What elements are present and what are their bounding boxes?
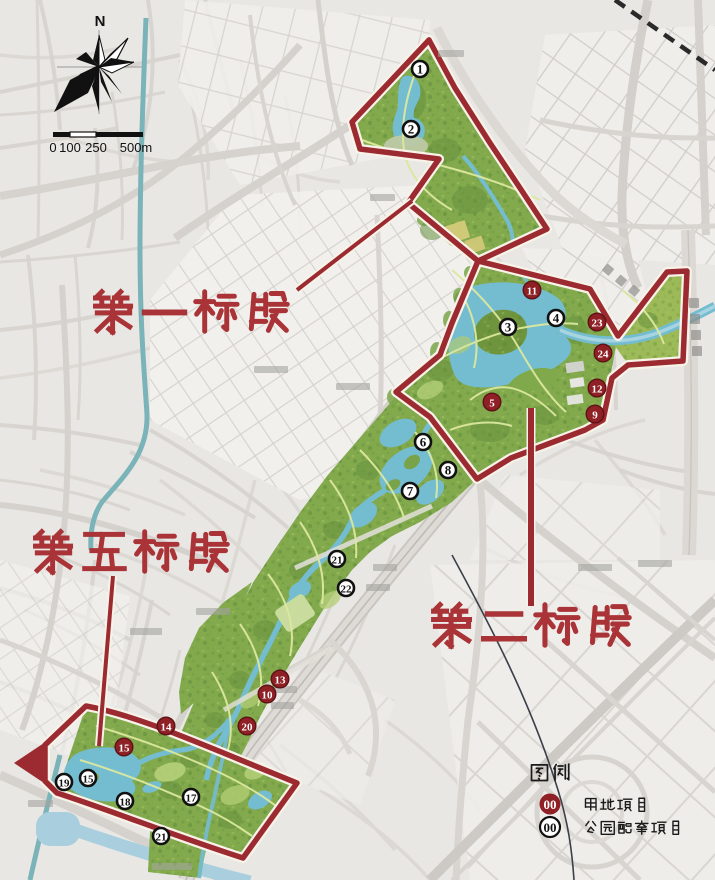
svg-text:00: 00 xyxy=(544,820,557,835)
svg-text:250: 250 xyxy=(85,140,107,155)
svg-text:21: 21 xyxy=(156,832,167,844)
svg-text:9: 9 xyxy=(592,410,598,422)
svg-text:1: 1 xyxy=(417,62,424,77)
svg-text:0: 0 xyxy=(49,140,56,155)
svg-text:8: 8 xyxy=(445,463,452,478)
svg-text:N: N xyxy=(95,13,106,30)
svg-text:21: 21 xyxy=(332,555,343,567)
svg-text:5: 5 xyxy=(489,398,495,410)
svg-text:11: 11 xyxy=(527,286,537,298)
svg-text:6: 6 xyxy=(420,435,427,450)
svg-text:3: 3 xyxy=(505,320,512,335)
svg-text:100: 100 xyxy=(59,140,81,155)
svg-text:15: 15 xyxy=(83,774,95,786)
svg-text:20: 20 xyxy=(242,722,254,734)
svg-text:13: 13 xyxy=(275,675,287,687)
svg-text:7: 7 xyxy=(407,484,414,499)
svg-text:14: 14 xyxy=(161,722,173,734)
svg-text:23: 23 xyxy=(592,318,604,330)
svg-text:17: 17 xyxy=(186,793,198,805)
svg-text:500m: 500m xyxy=(120,140,153,155)
svg-text:12: 12 xyxy=(592,384,604,396)
svg-text:22: 22 xyxy=(341,584,353,596)
svg-text:18: 18 xyxy=(120,797,132,809)
svg-text:10: 10 xyxy=(262,690,274,702)
svg-text:2: 2 xyxy=(408,122,415,137)
svg-text:19: 19 xyxy=(59,778,71,790)
svg-text:24: 24 xyxy=(598,349,610,361)
svg-text:15: 15 xyxy=(119,743,131,755)
svg-text:4: 4 xyxy=(553,311,560,326)
svg-text:00: 00 xyxy=(544,797,557,812)
